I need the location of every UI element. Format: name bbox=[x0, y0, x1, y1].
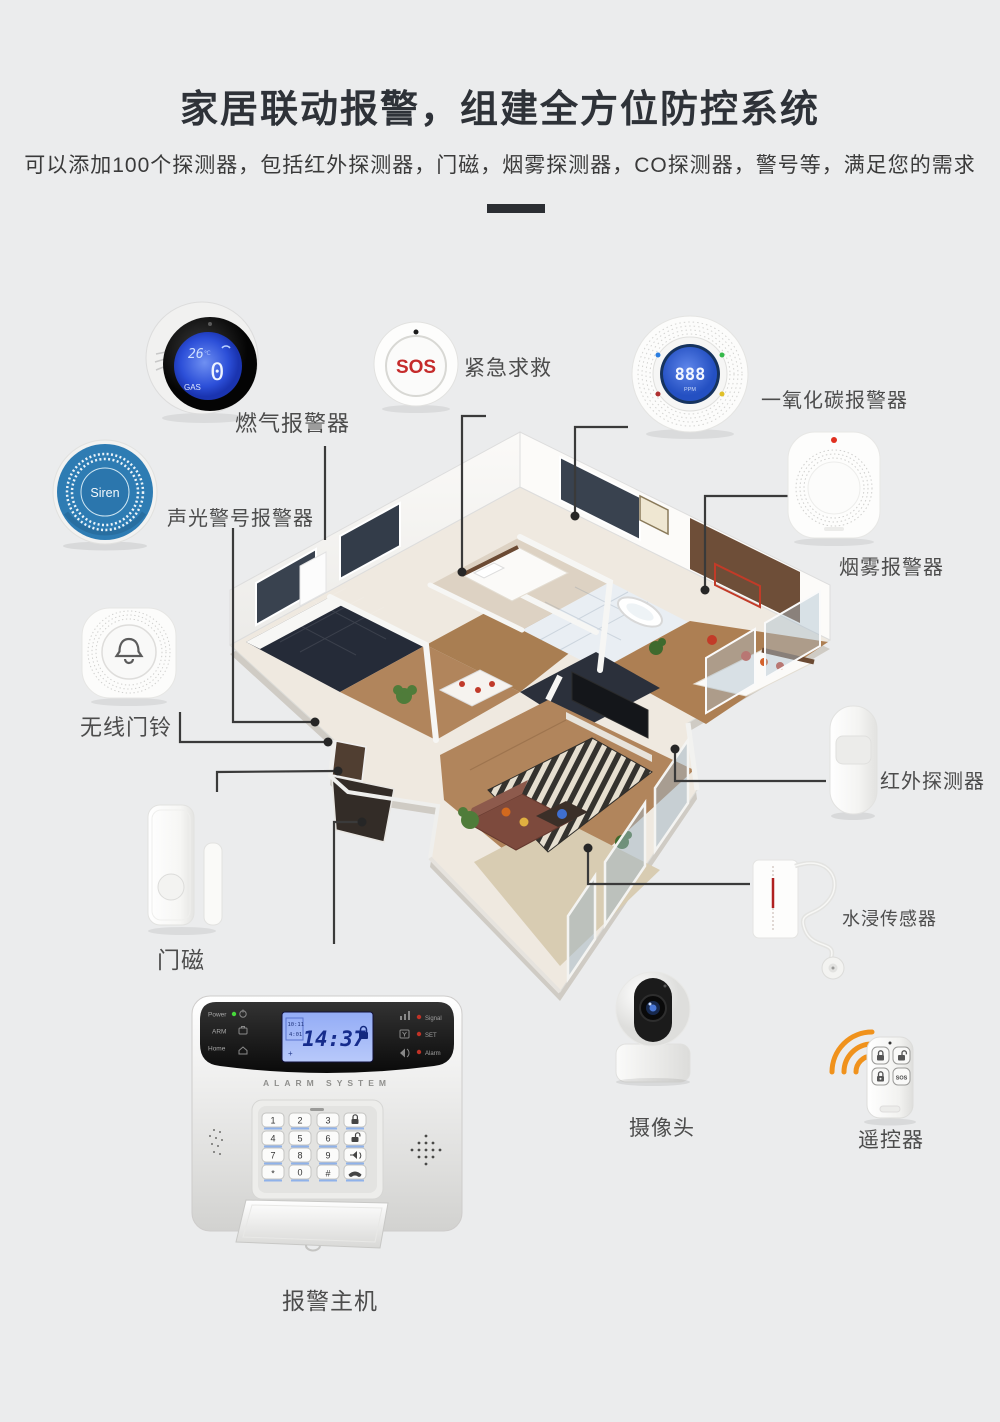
doorbell-device bbox=[80, 606, 180, 711]
key-0: 0 bbox=[297, 1168, 302, 1178]
connector-co-alarm bbox=[575, 427, 628, 515]
alarm-host-device: Power ARM Home 10:11 4:01 14:37 + Signal… bbox=[190, 990, 470, 1263]
remote-device: SOS bbox=[818, 1010, 930, 1133]
gas-lcd-temp-unit: ℃ bbox=[204, 351, 211, 357]
siren-text: Siren bbox=[90, 486, 119, 500]
host-power-label: Power bbox=[208, 1012, 227, 1019]
co-lcd-value: 888 bbox=[675, 365, 706, 385]
host-arm-label: ARM bbox=[212, 1029, 226, 1036]
gas-lcd-gas-text: GAS bbox=[184, 383, 201, 392]
host-lcd-small-bottom: 4:01 bbox=[289, 1032, 302, 1038]
key-star: * bbox=[271, 1169, 275, 1179]
connector-smoke-alarm bbox=[705, 496, 788, 590]
sos-button-device: SOS bbox=[372, 318, 464, 419]
key-3: 3 bbox=[325, 1116, 330, 1126]
co-lcd-unit: PPM bbox=[684, 387, 696, 393]
remote-label: 遥控器 bbox=[858, 1124, 924, 1154]
smoke-alarm-label: 烟雾报警器 bbox=[839, 551, 944, 580]
key-hash: # bbox=[325, 1169, 330, 1179]
co-alarm-label: 一氧化碳报警器 bbox=[761, 384, 908, 413]
siren-label: 声光警号报警器 bbox=[167, 502, 314, 531]
connector-door-sensor bbox=[217, 771, 336, 792]
co-alarm-device: 888 PPM bbox=[626, 312, 754, 445]
host-alarm-label: Alarm bbox=[425, 1051, 441, 1057]
host-home-label: Home bbox=[208, 1046, 226, 1053]
host-signal-label: Signal bbox=[425, 1016, 442, 1022]
gas-lcd-value: 0 bbox=[210, 358, 224, 386]
host-lcd-time: 14:37 bbox=[302, 1027, 366, 1051]
product-infographic: 家居联动报警，组建全方位防控系统 可以添加100个探测器，包括红外探测器，门磁，… bbox=[0, 0, 1000, 1422]
pir-detector-device bbox=[824, 702, 882, 827]
sos-button-text: SOS bbox=[396, 357, 436, 378]
host-lcd-plus: + bbox=[288, 1049, 293, 1058]
wireless-waves-icon bbox=[832, 1032, 872, 1072]
key-5: 5 bbox=[297, 1134, 302, 1144]
pir-detector-label: 红外探测器 bbox=[880, 765, 985, 794]
doorbell-label: 无线门铃 bbox=[80, 710, 172, 742]
sos-button-label: 紧急求救 bbox=[464, 352, 552, 382]
connector-siren bbox=[233, 528, 313, 722]
camera-device bbox=[610, 968, 705, 1098]
gas-alarm-label: 燃气报警器 bbox=[235, 406, 350, 438]
door-sensor-device bbox=[142, 795, 262, 942]
connector-sos-button bbox=[462, 416, 486, 572]
remote-sos-key: SOS bbox=[896, 1076, 908, 1082]
key-2: 2 bbox=[297, 1116, 302, 1126]
door-sensor-label: 门磁 bbox=[157, 941, 205, 975]
water-sensor-device bbox=[745, 852, 855, 992]
host-set-label: SET bbox=[425, 1033, 437, 1039]
smoke-alarm-device bbox=[782, 426, 886, 553]
connector-water-sensor bbox=[588, 848, 750, 884]
connector-alarm-host bbox=[334, 822, 360, 944]
key-8: 8 bbox=[297, 1151, 302, 1161]
water-sensor-label: 水浸传感器 bbox=[842, 905, 937, 931]
host-brand-text: ALARM SYSTEM bbox=[263, 1078, 391, 1088]
key-6: 6 bbox=[325, 1134, 330, 1144]
key-4: 4 bbox=[270, 1134, 275, 1144]
key-1: 1 bbox=[270, 1116, 275, 1126]
key-7: 7 bbox=[270, 1151, 275, 1161]
gas-lcd-temp: 26 bbox=[188, 347, 204, 362]
key-9: 9 bbox=[325, 1151, 330, 1161]
alarm-host-label: 报警主机 bbox=[282, 1282, 378, 1316]
connector-pir-detector bbox=[675, 749, 826, 781]
camera-label: 摄像头 bbox=[629, 1112, 695, 1142]
siren-device: Siren bbox=[50, 438, 162, 557]
connector-doorbell bbox=[180, 712, 326, 742]
power-led bbox=[232, 1012, 236, 1016]
